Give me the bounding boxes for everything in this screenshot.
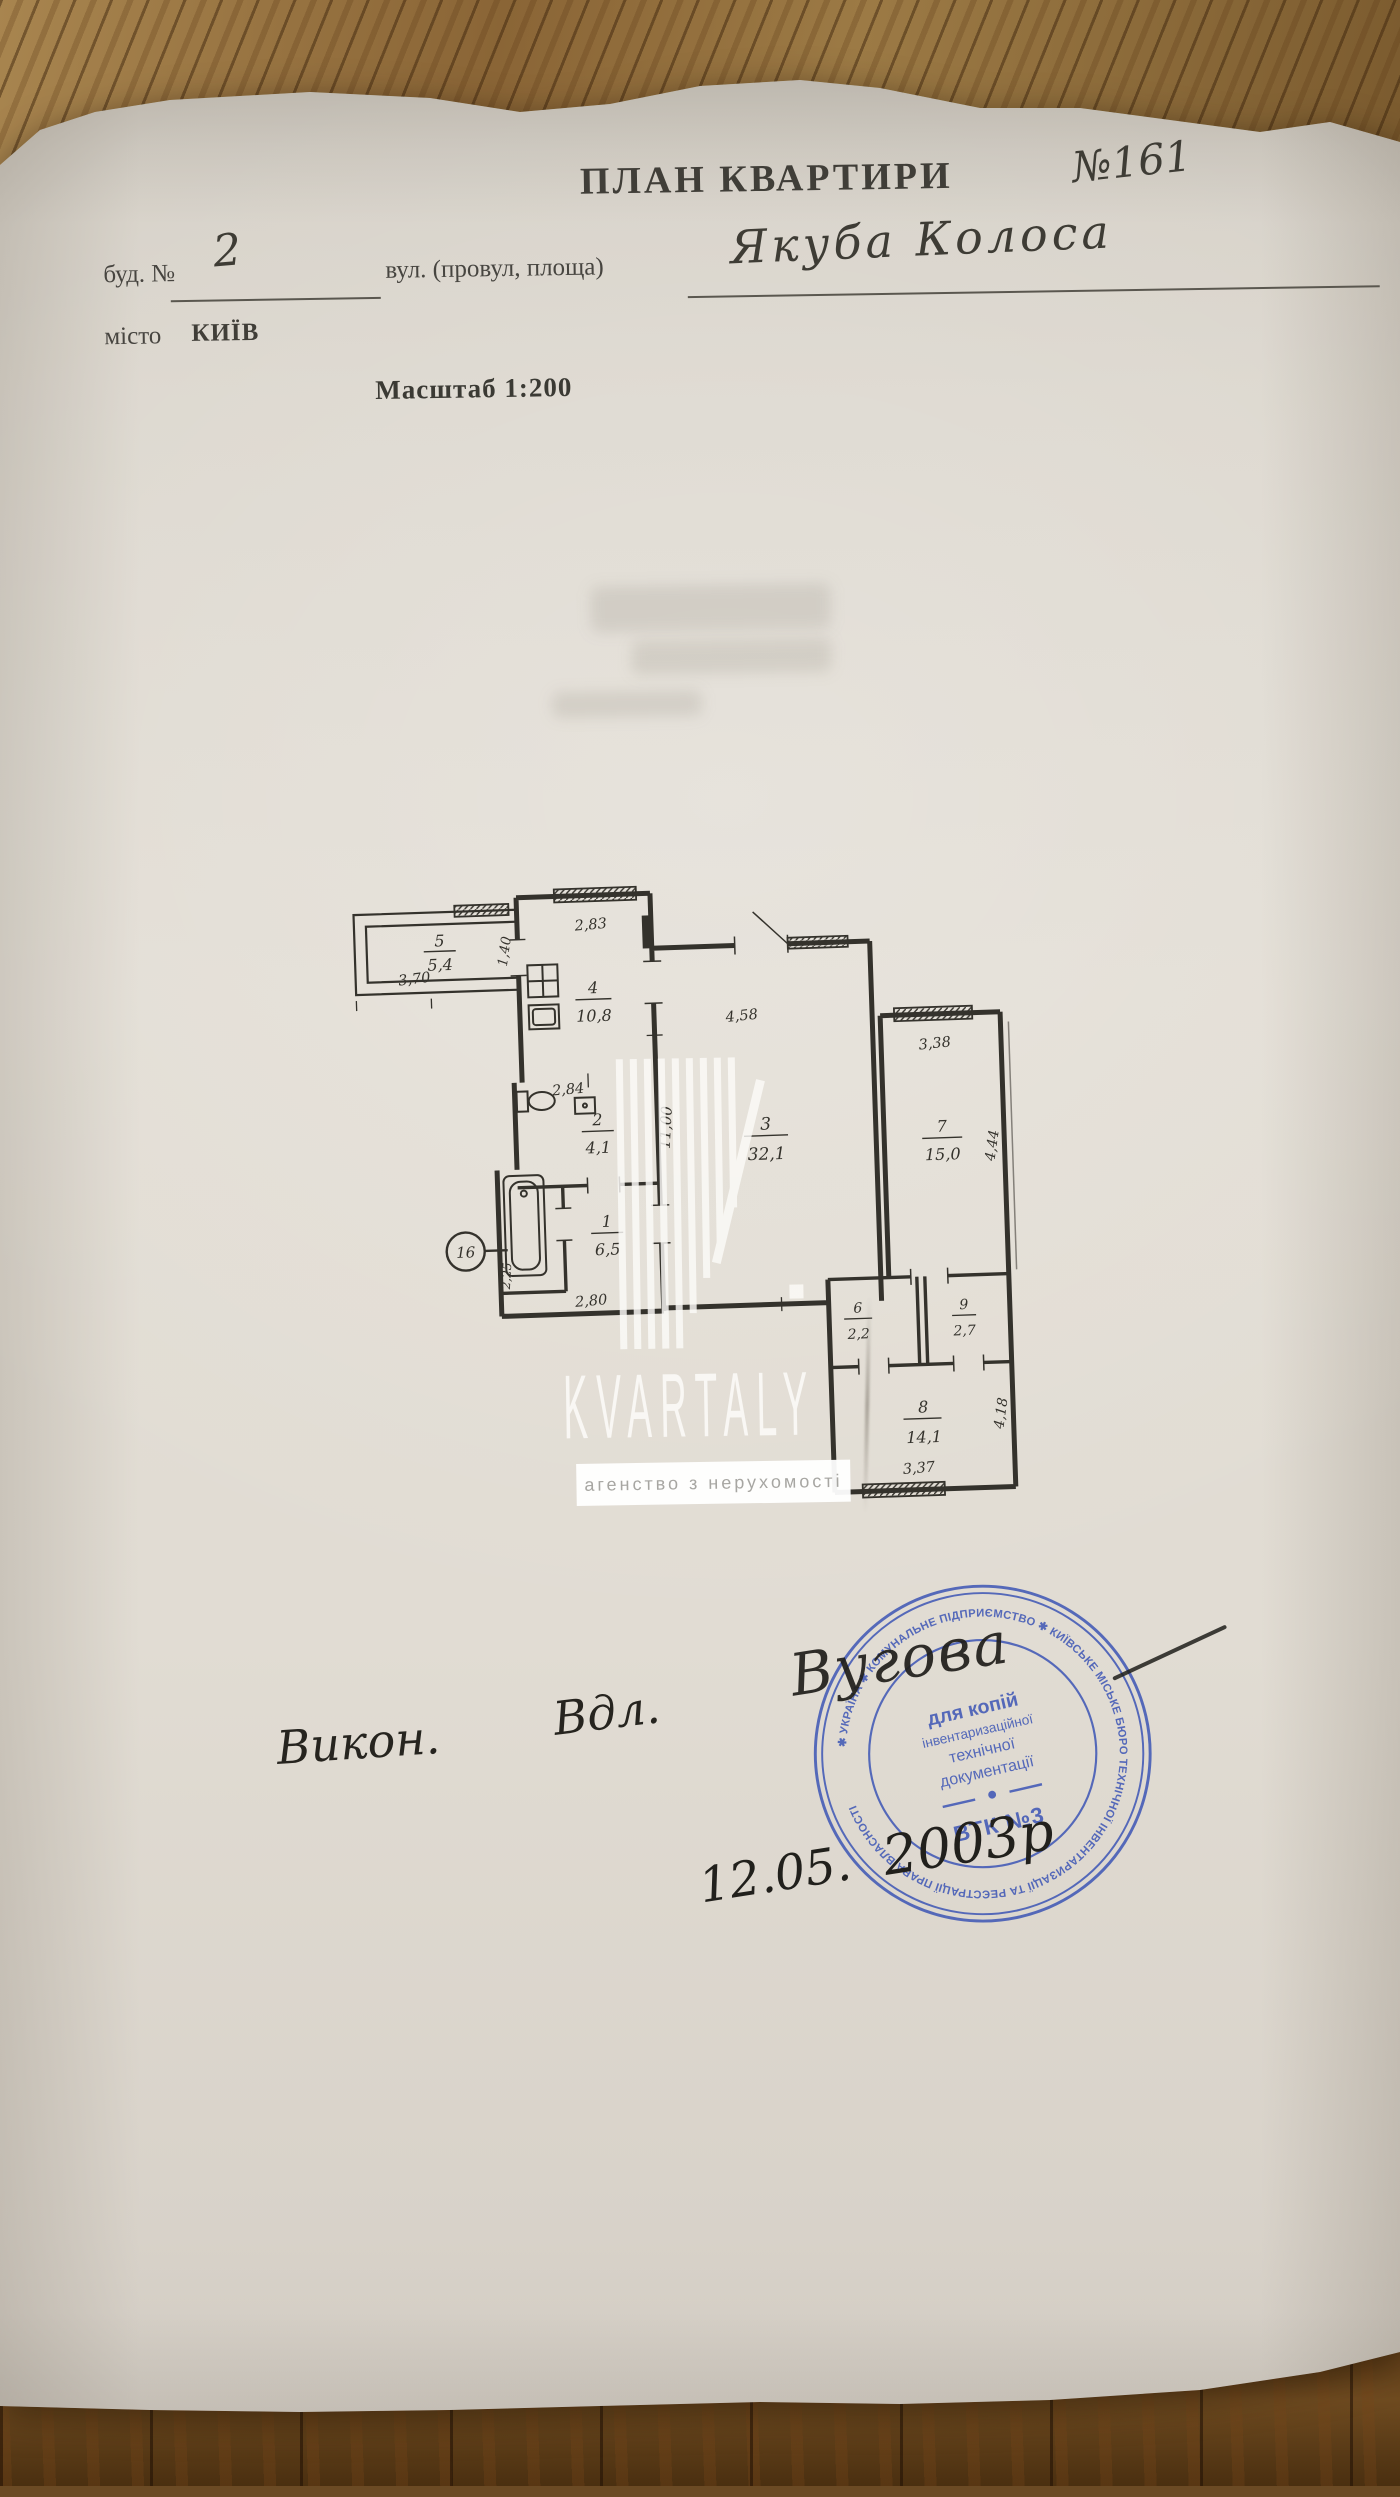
svg-text:6,5: 6,5 xyxy=(595,1239,621,1259)
room-label-2: 2 4,1 xyxy=(581,1110,615,1158)
dim-hall-side: 2,25 xyxy=(499,1262,514,1290)
street-underline xyxy=(688,285,1380,298)
document-title: ПЛАН КВАРТИРИ xyxy=(580,154,953,204)
logo-bar xyxy=(686,1058,697,1313)
kvartaly-tagline: агенство з нерухомості xyxy=(576,1460,851,1506)
building-label: буд. № xyxy=(103,260,175,289)
dim-bath: 2,84 xyxy=(550,1081,585,1100)
dim-kitchen-top: 2,83 xyxy=(573,916,608,935)
building-number-handwritten: 2 xyxy=(211,224,243,277)
kitchen-stove-icon xyxy=(527,964,559,1029)
svg-text:10,8: 10,8 xyxy=(576,1006,612,1026)
document-content: ПЛАН КВАРТИРИ №161 буд. № 2 вул. (провул… xyxy=(0,0,1400,2497)
city-name: КИЇВ xyxy=(191,319,259,348)
room-label-9: 9 2,7 xyxy=(951,1297,977,1340)
room-label-8: 8 14,1 xyxy=(903,1397,943,1447)
svg-text:4,1: 4,1 xyxy=(584,1138,611,1158)
balcony-walls xyxy=(354,910,520,995)
bleed-through-smudge xyxy=(552,690,702,718)
dim-balcony: 3,70 xyxy=(397,970,431,990)
building-underline xyxy=(171,297,381,302)
executor-signature-handwritten: Вдл. xyxy=(550,1679,663,1745)
toilet-icon xyxy=(516,1091,555,1112)
svg-text:4: 4 xyxy=(587,978,599,997)
street-name-handwritten: Якуба Колоса xyxy=(729,204,1114,274)
entrance-tick xyxy=(485,1250,508,1251)
dim-kitchen-side: 1,40 xyxy=(495,935,515,967)
bathtub-icon xyxy=(503,1175,546,1276)
entrance-number: 16 xyxy=(456,1243,476,1262)
logo-bar xyxy=(658,1059,670,1349)
svg-text:15,0: 15,0 xyxy=(925,1144,961,1164)
dim-hall: 2,80 xyxy=(573,1292,608,1311)
svg-text:2,7: 2,7 xyxy=(952,1323,976,1340)
dim-room7-side: 4,44 xyxy=(982,1129,1002,1163)
svg-text:1: 1 xyxy=(601,1212,612,1231)
svg-text:2: 2 xyxy=(591,1110,603,1129)
wall-pillar xyxy=(642,915,653,948)
logo-bar xyxy=(672,1058,684,1348)
kvartaly-logo-mark xyxy=(616,1056,831,1359)
room-label-5: 5 5,4 xyxy=(423,931,456,975)
dim-living-top: 4,58 xyxy=(724,1007,759,1026)
svg-text:5,4: 5,4 xyxy=(427,955,453,975)
bleed-through-smudge xyxy=(590,583,831,633)
room-label-7: 7 15,0 xyxy=(922,1116,964,1164)
svg-text:7: 7 xyxy=(936,1117,948,1136)
room-label-4: 4 10,8 xyxy=(575,978,613,1026)
svg-text:8: 8 xyxy=(918,1397,929,1416)
logo-bar xyxy=(630,1059,642,1349)
street-label: вул. (провул, площа) xyxy=(385,253,604,284)
logo-bar xyxy=(700,1058,710,1278)
photo-of-floor-plan-document: { "page": { "title": "ПЛАН КВАРТИРИ", "a… xyxy=(0,0,1400,2486)
svg-text:6: 6 xyxy=(853,1300,863,1316)
executor-label-handwritten: Викон. xyxy=(275,1710,442,1775)
svg-text:5: 5 xyxy=(434,931,445,950)
logo-bar xyxy=(644,1059,656,1349)
scale-note: Масштаб 1:200 xyxy=(375,372,573,406)
bleed-through-smudge xyxy=(631,638,832,675)
kvartaly-wordmark: KVARTALY xyxy=(562,1350,841,1460)
apartment-number-handwritten: №161 xyxy=(1070,131,1194,192)
logo-dot xyxy=(789,1284,803,1298)
svg-text:14,1: 14,1 xyxy=(906,1427,942,1447)
svg-text:9: 9 xyxy=(959,1297,969,1313)
dim-room8-side: 4,18 xyxy=(991,1397,1011,1431)
dim-room8-bottom: 3,37 xyxy=(902,1459,936,1478)
dim-room7-top: 3,38 xyxy=(918,1034,952,1053)
city-label: місто xyxy=(104,322,161,351)
